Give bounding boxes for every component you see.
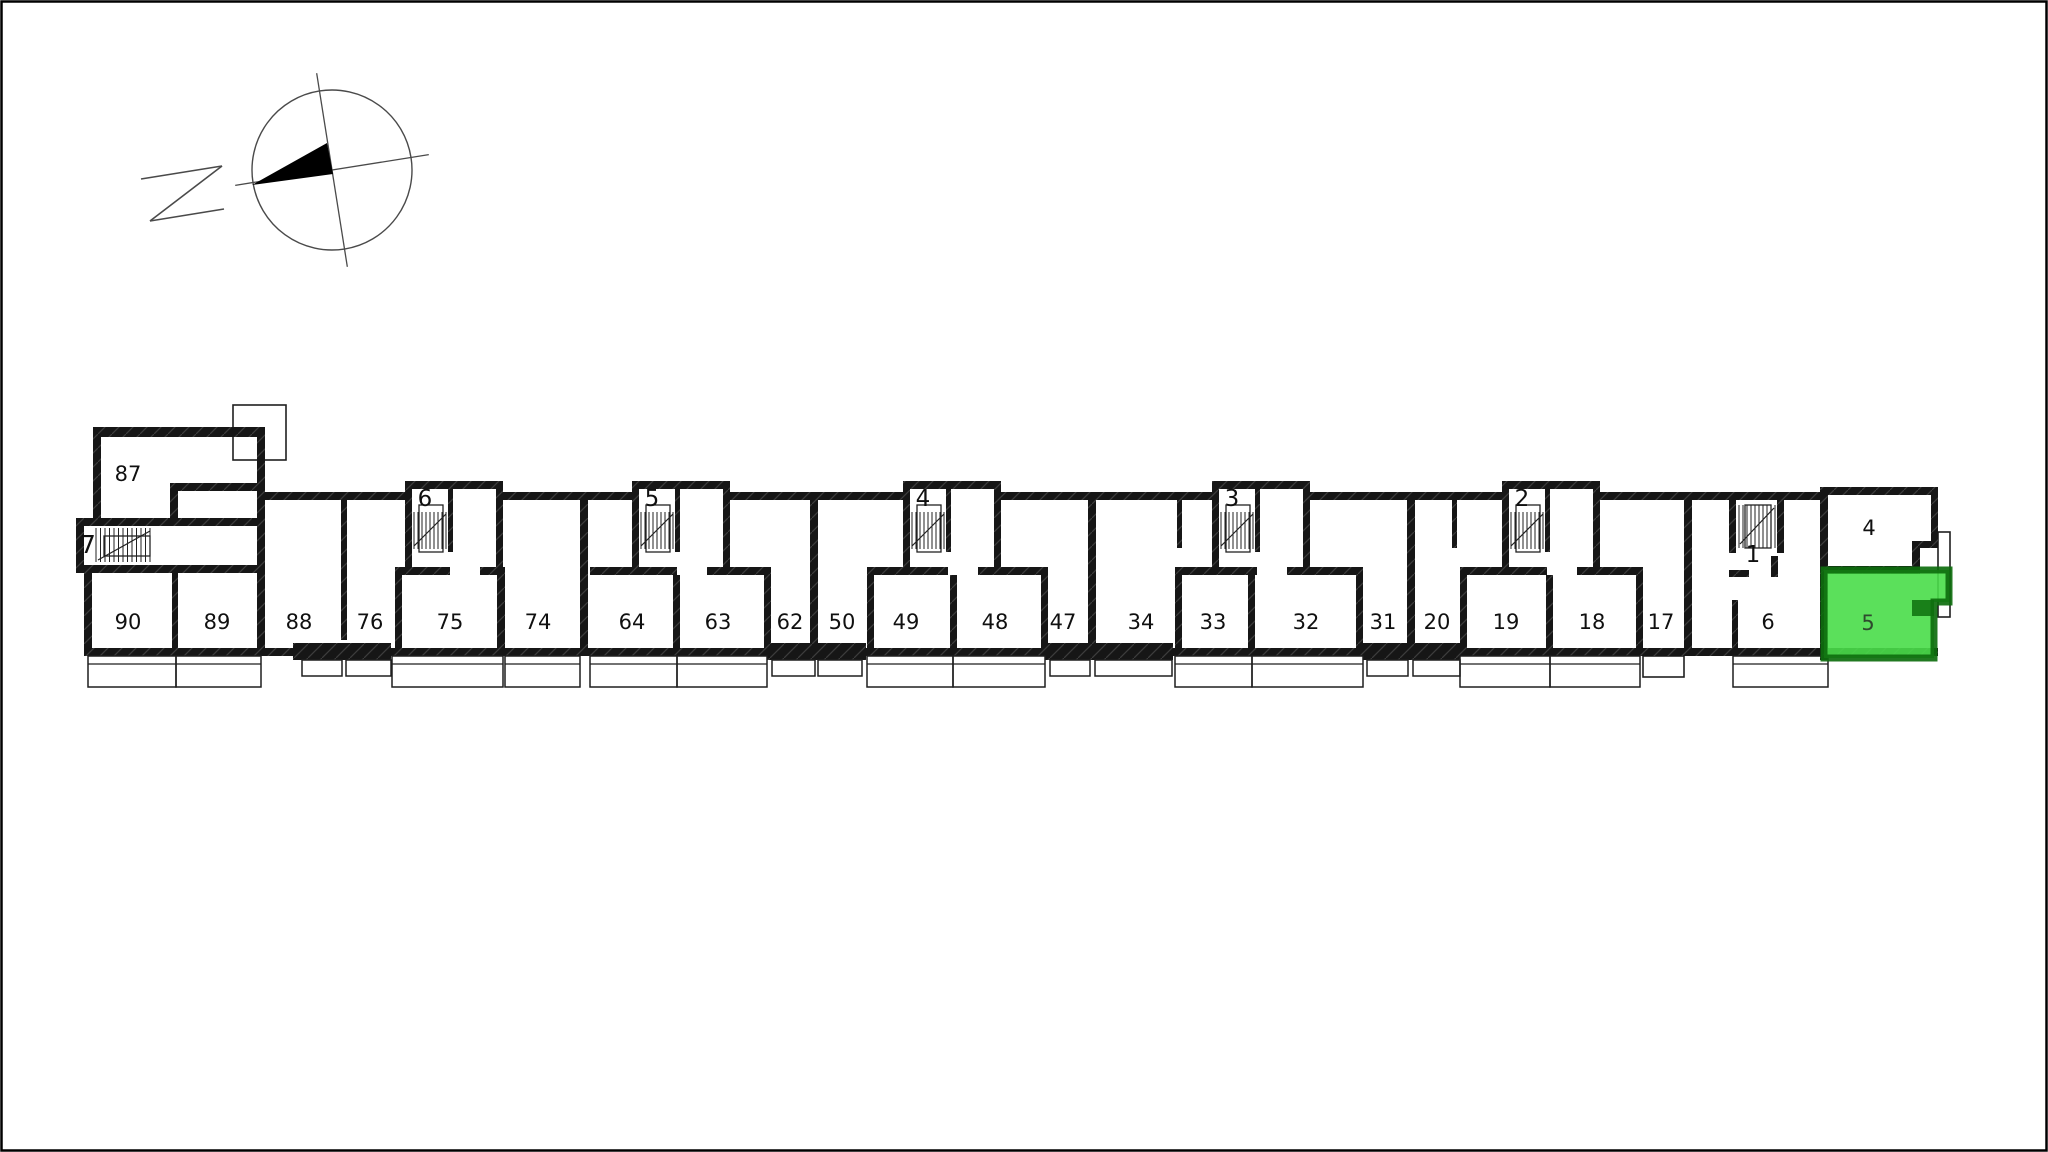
highlighted-unit[interactable]: 5 xyxy=(1824,570,1949,658)
stairwell-label-1: 1 xyxy=(1746,542,1761,568)
stairwell-label-6: 6 xyxy=(418,486,433,512)
wall-segment xyxy=(1546,575,1553,656)
room-label-31: 31 xyxy=(1370,610,1397,634)
stairwell-label-3: 3 xyxy=(1225,486,1240,512)
unit-5-step-wall xyxy=(1912,600,1934,616)
wall-segment xyxy=(723,481,730,574)
wall-segment xyxy=(1212,481,1219,574)
floor-plan-page: 6543217 5 879089887675746463625049484734… xyxy=(0,0,2048,1152)
room-label-62: 62 xyxy=(777,610,804,634)
room-label-34: 34 xyxy=(1128,610,1155,634)
floor-plan-svg: 6543217 5 879089887675746463625049484734… xyxy=(0,0,2048,1152)
wall-segment xyxy=(1303,481,1310,574)
room-label-17: 17 xyxy=(1648,610,1675,634)
room-label-47: 47 xyxy=(1050,610,1077,634)
wall-segment xyxy=(1452,500,1457,548)
stairwell-label-5: 5 xyxy=(645,486,660,512)
wall-segment xyxy=(265,492,405,500)
wall-segment xyxy=(1777,492,1784,553)
wall-segment xyxy=(1593,481,1600,574)
room-label-74: 74 xyxy=(525,610,552,634)
room-label-32: 32 xyxy=(1293,610,1320,634)
room-label-76: 76 xyxy=(357,610,384,634)
room-label-64: 64 xyxy=(619,610,646,634)
room-label-33: 33 xyxy=(1200,610,1227,634)
wall-segment xyxy=(496,481,503,574)
wall-segment xyxy=(867,567,874,656)
wall-segment xyxy=(341,500,347,640)
wall-segment xyxy=(1771,556,1778,577)
wall-segment xyxy=(84,565,92,656)
wall-segment xyxy=(1255,489,1260,552)
wall-segment xyxy=(93,427,101,522)
wall-segment xyxy=(84,648,265,656)
wall-segment xyxy=(1287,567,1363,575)
room-label-49: 49 xyxy=(893,610,920,634)
wall-segment xyxy=(1600,492,1822,500)
wall-segment xyxy=(1684,492,1692,656)
room-label-19: 19 xyxy=(1493,610,1520,634)
room-label-20: 20 xyxy=(1424,610,1451,634)
wall-segment xyxy=(76,518,262,526)
room-label-87: 87 xyxy=(115,462,142,486)
wall-segment xyxy=(764,567,771,656)
wall-segment xyxy=(170,483,262,491)
room-label-63: 63 xyxy=(705,610,732,634)
wall-segment xyxy=(93,427,265,437)
wall-segment xyxy=(590,567,677,575)
room-label-88: 88 xyxy=(286,610,313,634)
wall-segment xyxy=(1912,541,1938,548)
wall-segment xyxy=(673,575,680,656)
room-label-50: 50 xyxy=(829,610,856,634)
room-label-18: 18 xyxy=(1579,610,1606,634)
wall-segment xyxy=(1175,567,1257,575)
room-label-75: 75 xyxy=(437,610,464,634)
wall-segment xyxy=(1407,492,1415,656)
wall-segment xyxy=(1248,575,1255,656)
wall-segment xyxy=(1363,643,1460,660)
wall-segment xyxy=(1545,489,1550,552)
wall-segment xyxy=(994,481,1001,574)
wall-segment xyxy=(1732,600,1738,656)
wall-segment xyxy=(1822,487,1938,495)
wall-segment xyxy=(978,567,1048,575)
room-label-4: 4 xyxy=(1862,516,1875,540)
wall-segment xyxy=(767,643,866,660)
wall-segment xyxy=(632,481,639,574)
wall-segment xyxy=(503,492,632,500)
wall-segment xyxy=(675,489,680,552)
wall-segment xyxy=(1000,492,1212,500)
stairwell-label-4: 4 xyxy=(916,486,931,512)
wall-segment xyxy=(810,492,818,656)
wall-segment xyxy=(1175,567,1182,656)
wall-segment xyxy=(903,481,910,574)
wall-segment xyxy=(448,489,453,552)
wall-segment xyxy=(1356,567,1363,656)
wall-segment xyxy=(1577,567,1643,575)
wall-segment xyxy=(1460,567,1467,656)
stairwell-label-7: 7 xyxy=(80,530,96,559)
wall-segment xyxy=(76,565,262,573)
wall-segment xyxy=(1310,492,1502,500)
wall-segment xyxy=(497,567,505,656)
stairwell-label-2: 2 xyxy=(1515,486,1530,512)
wall-segment xyxy=(172,571,178,651)
wall-segment xyxy=(1729,492,1736,553)
room-label-6: 6 xyxy=(1761,610,1774,634)
wall-segment xyxy=(867,567,948,575)
room-label-89: 89 xyxy=(204,610,231,634)
wall-segment xyxy=(257,427,265,656)
room-label-48: 48 xyxy=(982,610,1009,634)
wall-segment xyxy=(480,567,503,575)
wall-segment xyxy=(405,481,412,574)
wall-segment xyxy=(1088,492,1096,656)
wall-segment xyxy=(395,567,450,575)
wall-segment xyxy=(946,489,951,552)
wall-segment xyxy=(1460,567,1547,575)
wall-segment xyxy=(1177,500,1182,548)
wall-segment xyxy=(950,575,957,656)
wall-segment xyxy=(395,567,402,656)
room-label-5: 5 xyxy=(1861,611,1874,635)
wall-segment xyxy=(1729,570,1749,577)
wall-segment xyxy=(1045,643,1173,660)
wall-segment xyxy=(293,643,391,660)
wall-segment xyxy=(1041,567,1048,656)
room-label-90: 90 xyxy=(115,610,142,634)
wall-segment xyxy=(580,492,588,656)
wall-segment xyxy=(1636,567,1643,656)
wall-segment xyxy=(1931,487,1938,544)
wall-segment xyxy=(1502,481,1509,574)
wall-segment xyxy=(707,567,771,575)
